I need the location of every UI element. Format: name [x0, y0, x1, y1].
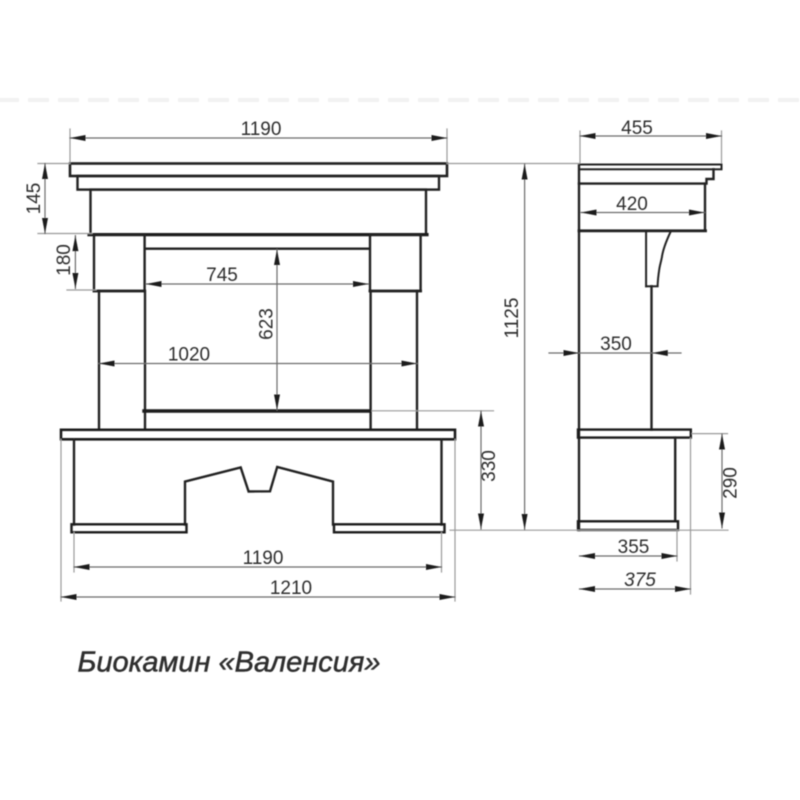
- svg-text:330: 330: [479, 450, 500, 482]
- svg-text:1190: 1190: [243, 548, 284, 569]
- svg-text:180: 180: [54, 244, 75, 276]
- svg-text:Биокамин «Валенсия»: Биокамин «Валенсия»: [78, 647, 381, 679]
- svg-text:420: 420: [616, 194, 648, 215]
- svg-text:1210: 1210: [270, 578, 312, 599]
- svg-text:1020: 1020: [168, 345, 210, 366]
- svg-text:145: 145: [24, 183, 45, 215]
- svg-text:375: 375: [624, 570, 656, 591]
- svg-text:745: 745: [206, 265, 238, 286]
- svg-text:623: 623: [257, 308, 278, 340]
- svg-text:350: 350: [600, 334, 632, 355]
- svg-text:1190: 1190: [241, 119, 282, 140]
- svg-text:355: 355: [618, 537, 650, 558]
- svg-text:455: 455: [621, 118, 653, 139]
- svg-text:1125: 1125: [502, 298, 523, 339]
- svg-text:290: 290: [721, 467, 742, 499]
